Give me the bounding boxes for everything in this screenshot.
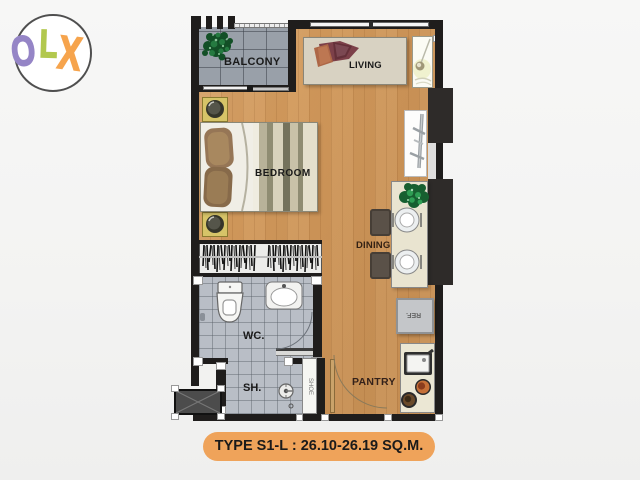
svg-text:X: X bbox=[55, 26, 85, 81]
svg-text:L: L bbox=[39, 23, 58, 67]
svg-text:O: O bbox=[9, 26, 38, 75]
